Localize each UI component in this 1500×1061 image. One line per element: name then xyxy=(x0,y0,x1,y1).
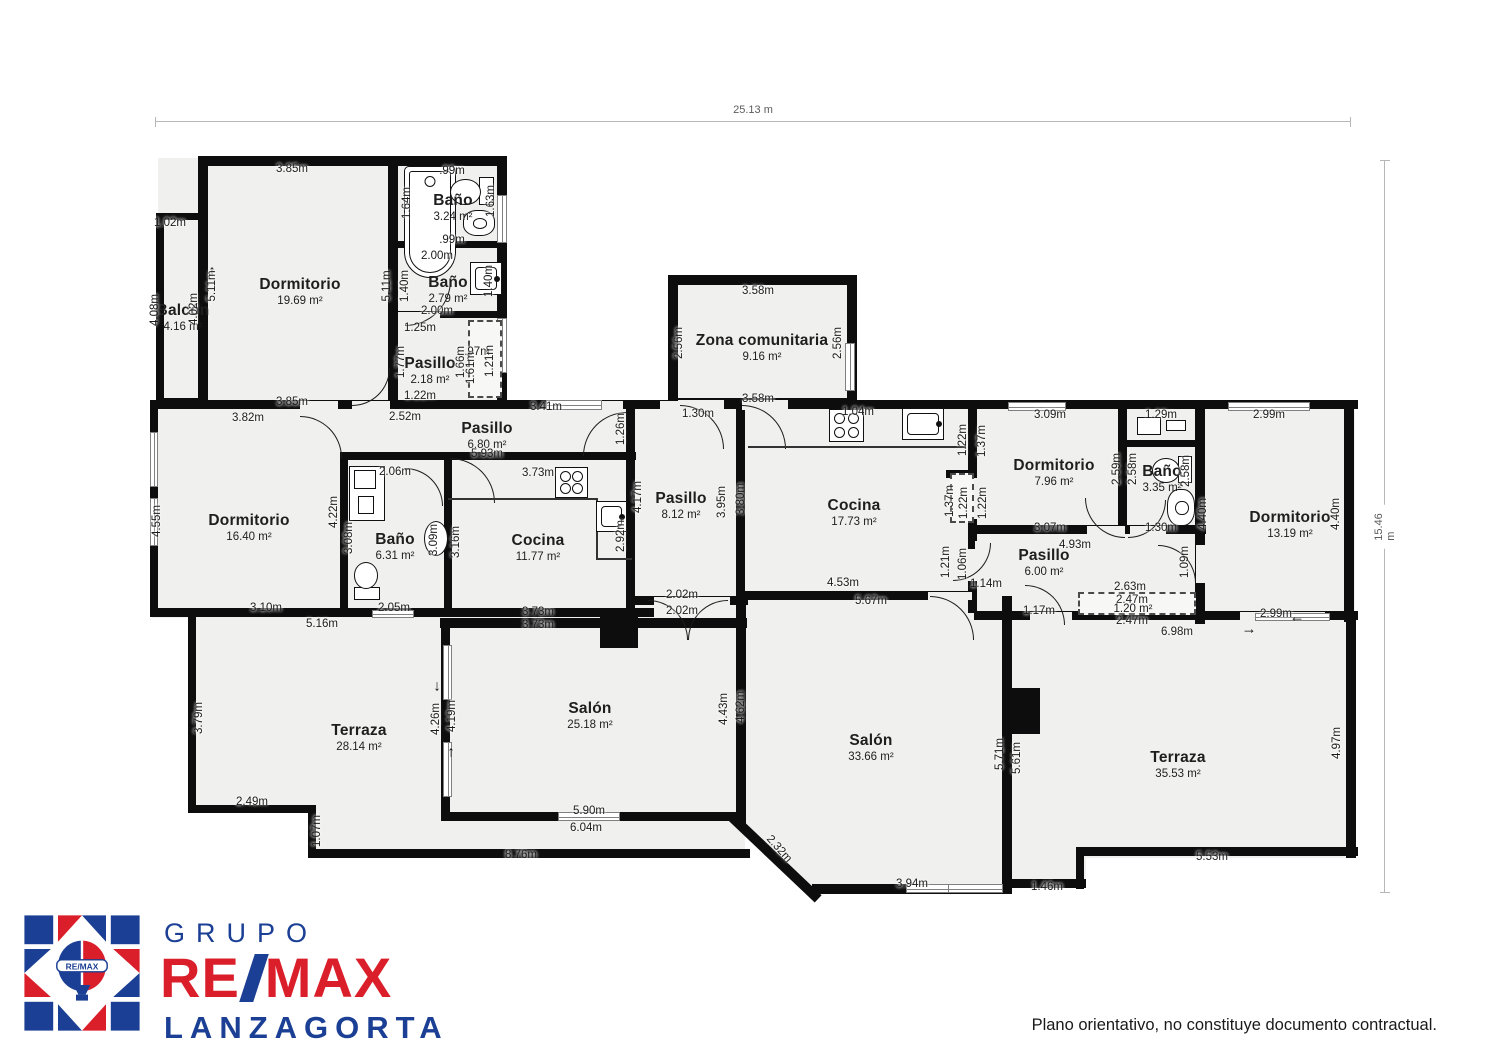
dimension-label: 5.11m xyxy=(381,270,393,301)
dimension-label: 1.30m xyxy=(682,408,714,420)
dimension-label: 1.22m xyxy=(404,390,436,402)
dimension-label: 3.16m xyxy=(450,526,462,558)
dimension-label: 1.29m xyxy=(1145,409,1177,421)
dimension-label: 3.73m xyxy=(522,619,554,631)
window xyxy=(497,195,507,243)
dimension-label: 1.07m xyxy=(311,815,323,847)
total-height-dimension-line: 15.46 m xyxy=(1384,160,1385,893)
page: { "overall": {"width_label": "25.13 m", … xyxy=(0,0,1500,1061)
pillar xyxy=(600,616,638,648)
dimension-label: 2.49m xyxy=(236,796,268,808)
room-label: Dormitorio16.40 m² xyxy=(208,511,289,545)
dimension-label: 1.02m xyxy=(154,217,186,229)
dimension-label: 5.93m xyxy=(471,448,503,460)
room-label: Terraza28.14 m² xyxy=(331,721,386,755)
floorplan: ↓↑↓↑←→Balcón4.16 m²Dormitorio19.69 m²Bañ… xyxy=(0,0,1500,1061)
dimension-label: 2.00m xyxy=(421,250,453,262)
wall xyxy=(1346,611,1356,858)
dimension-label: 1.37m xyxy=(976,425,988,457)
dimension-label: 1.22m xyxy=(957,424,969,456)
dimension-label: 4.97m xyxy=(1331,727,1343,759)
dimension-label: 1.21m xyxy=(484,345,496,377)
dimension-label: 3.07m xyxy=(1034,522,1066,534)
dimension-label: 5.71m xyxy=(994,738,1006,770)
logo-re: RE xyxy=(160,951,240,1004)
dimension-label: 4.19m xyxy=(446,700,458,732)
dimension-label: 5.67m xyxy=(855,595,887,607)
dimension-label: 1.77m xyxy=(395,346,407,378)
room-label: Zona comunitaria9.16 m² xyxy=(696,331,828,365)
dimension-label: 1.17m xyxy=(1023,605,1055,617)
room-label: Pasillo8.12 m² xyxy=(655,489,706,523)
dimension-label: 2.92m xyxy=(615,520,627,552)
dimension-label: 3.08m xyxy=(343,522,355,554)
dimension-label: 2.02m xyxy=(666,589,698,601)
counter-line xyxy=(748,446,966,448)
wall xyxy=(1126,440,1199,447)
room-label: Dormitorio13.19 m² xyxy=(1249,508,1330,542)
room-label: Dormitorio19.69 m² xyxy=(259,275,340,309)
dimension-label: 4.40m xyxy=(1197,498,1209,530)
dimension-label: 1.22m xyxy=(958,487,970,519)
dimension-label: 1.21m xyxy=(940,546,952,578)
room-label: Pasillo6.00 m² xyxy=(1018,546,1069,580)
pillar xyxy=(1008,688,1040,734)
dimension-label: 5.11m xyxy=(206,270,218,301)
wc-fixture xyxy=(354,562,380,600)
disclaimer-text: Plano orientativo, no constituye documen… xyxy=(1032,1016,1437,1035)
room-label: Baño6.31 m² xyxy=(375,530,415,564)
room-label: Pasillo2.18 m² xyxy=(404,354,455,388)
dimension-label: 2.58m xyxy=(1127,453,1139,485)
logo-text: GRUPO RE MAX LANZAGORTA xyxy=(160,912,449,1046)
dimension-label: 4.02m xyxy=(188,293,200,325)
direction-arrow: → xyxy=(1242,621,1257,638)
dimension-label: 2.56m xyxy=(832,327,844,359)
dimension-label: 2.02m xyxy=(666,605,698,617)
window xyxy=(948,884,1003,893)
room-label: Baño3.24 m² xyxy=(433,191,473,225)
dimension-label: 1.14m xyxy=(970,578,1002,590)
dimension-label: 3.82m xyxy=(232,412,264,424)
dimension-label: 3.73m xyxy=(522,467,554,479)
dimension-label: 2.00m xyxy=(421,305,453,317)
logo-max: MAX xyxy=(265,951,392,1004)
dimension-label: 1.40m xyxy=(483,265,495,297)
dimension-label: 4.22m xyxy=(328,496,340,528)
window xyxy=(845,343,855,391)
dimension-label: 3.79m xyxy=(193,702,205,734)
counter-line xyxy=(448,498,598,500)
room-label: Dormitorio7.96 m² xyxy=(1013,456,1094,490)
dimension-label: 5.61m xyxy=(1011,742,1023,774)
dimension-label: 3.73m xyxy=(522,606,554,618)
logo-remax: RE MAX xyxy=(160,951,449,1004)
dimension-label: 3.10m xyxy=(250,602,282,614)
wall-opening xyxy=(1196,545,1205,583)
dimension-label: 2.05m xyxy=(378,602,410,614)
logo-grupo: GRUPO xyxy=(164,918,449,949)
dimension-label: 6.98m xyxy=(1161,626,1193,638)
sink-fixture xyxy=(902,408,944,440)
dimension-label: 5.16m xyxy=(306,618,338,630)
remax-logo: RE/MAX GRUPO RE MAX LANZAGORTA xyxy=(22,912,449,1046)
dimension-label: 3.58m xyxy=(742,285,774,297)
total-width-dimension-line: 25.13 m xyxy=(155,121,1351,122)
floor xyxy=(1012,618,1352,858)
dimension-label: 3.94m xyxy=(896,878,928,890)
dimension-label: 1.61m xyxy=(465,352,477,384)
dimension-label: 2.99m xyxy=(1253,409,1285,421)
counter-line xyxy=(598,558,632,560)
remax-balloon-logo: RE/MAX xyxy=(22,912,142,1034)
room-label: Cocina11.77 m² xyxy=(512,531,565,565)
dimension-label: 1.26m xyxy=(615,413,627,445)
dimension-label: 4.55m xyxy=(151,505,163,537)
dimension-label: 4.93m xyxy=(1059,539,1091,551)
wall xyxy=(668,275,857,285)
dimension-label: 1.64m xyxy=(401,187,413,219)
dimension-label: 4.40m xyxy=(1330,498,1342,530)
dimension-label: 2.47m xyxy=(1116,615,1148,627)
dimension-label: 4.62m xyxy=(735,691,747,723)
dimension-label: 1.63m xyxy=(485,185,497,217)
dimension-label: 1.06m xyxy=(957,548,969,580)
dimension-label: 1.20 m² xyxy=(1114,603,1153,615)
total-width-label: 25.13 m xyxy=(725,104,781,116)
dimension-label: 3.58m xyxy=(742,393,774,405)
logo-lanzagorta: LANZAGORTA xyxy=(164,1010,449,1046)
dimension-label: 3.41m xyxy=(530,401,562,413)
dimension-label: 1.09m xyxy=(1179,546,1191,578)
dimension-label: 3.85m xyxy=(276,396,308,408)
room-label: Salón33.66 m² xyxy=(848,731,893,765)
floor xyxy=(190,615,745,811)
balloon-badge-text: RE/MAX xyxy=(66,961,99,971)
dimension-label: 3.09m xyxy=(428,524,440,556)
dimension-label: 2.99m xyxy=(1260,608,1292,620)
room-label: Cocina17.73 m² xyxy=(828,496,881,530)
dimension-label: 1.25m xyxy=(404,322,436,334)
window xyxy=(443,645,452,700)
dimension-label: 2.58m xyxy=(1180,455,1192,487)
dimension-label: 8.76m xyxy=(505,849,537,861)
total-height-label: 15.46 m xyxy=(1373,505,1397,549)
dimension-label: 1.37m xyxy=(944,485,956,517)
dimension-label: 6.04m xyxy=(570,822,602,834)
window xyxy=(150,432,158,487)
dimension-label: 5.90m xyxy=(573,805,605,817)
room-label: Terraza35.53 m² xyxy=(1150,748,1205,782)
dimension-label: .99m xyxy=(439,165,465,177)
dimension-label: 2.56m xyxy=(673,327,685,359)
direction-arrow: ↓ xyxy=(433,678,441,695)
box-fixture xyxy=(1166,420,1186,431)
room-label: Baño3.35 m² xyxy=(1142,462,1182,496)
dimension-label: 2.59m xyxy=(1111,453,1123,485)
dimension-label: 2.06m xyxy=(379,466,411,478)
dimension-label: 1.22m xyxy=(977,487,989,519)
dimension-label: 4.08m xyxy=(149,294,161,326)
room-label: Baño2.79 m² xyxy=(428,273,468,307)
direction-arrow: ↑ xyxy=(447,744,455,761)
dimension-label: 4.26m xyxy=(430,703,442,735)
wall xyxy=(342,452,452,460)
dimension-label: 3.80m xyxy=(735,483,747,515)
dimension-label: 4.43m xyxy=(718,693,730,725)
dimension-label: 4.17m xyxy=(632,481,644,513)
room-label: Balcón4.16 m² xyxy=(157,301,210,335)
dimension-label: 3.09m xyxy=(1034,409,1066,421)
stove-fixture xyxy=(555,467,588,498)
dimension-label: 1.40m xyxy=(399,270,411,302)
dimension-label: 2.52m xyxy=(389,411,421,423)
dimension-label: 3.85m xyxy=(276,163,308,175)
dimension-label: 1.46m xyxy=(1031,881,1063,893)
dimension-label: 1.30m xyxy=(1145,522,1177,534)
dimension-label: 1.04m xyxy=(842,406,874,418)
direction-arrow: ↓ xyxy=(198,228,206,245)
dimension-label: 2.63m xyxy=(1114,581,1146,593)
room-label: Salón25.18 m² xyxy=(567,699,612,733)
dimension-label: 5.53m xyxy=(1196,851,1228,863)
wall xyxy=(1344,400,1354,622)
dimension-label: 3.95m xyxy=(716,486,728,518)
dimension-label: 4.53m xyxy=(827,577,859,589)
dimension-label: .99m xyxy=(439,234,465,246)
